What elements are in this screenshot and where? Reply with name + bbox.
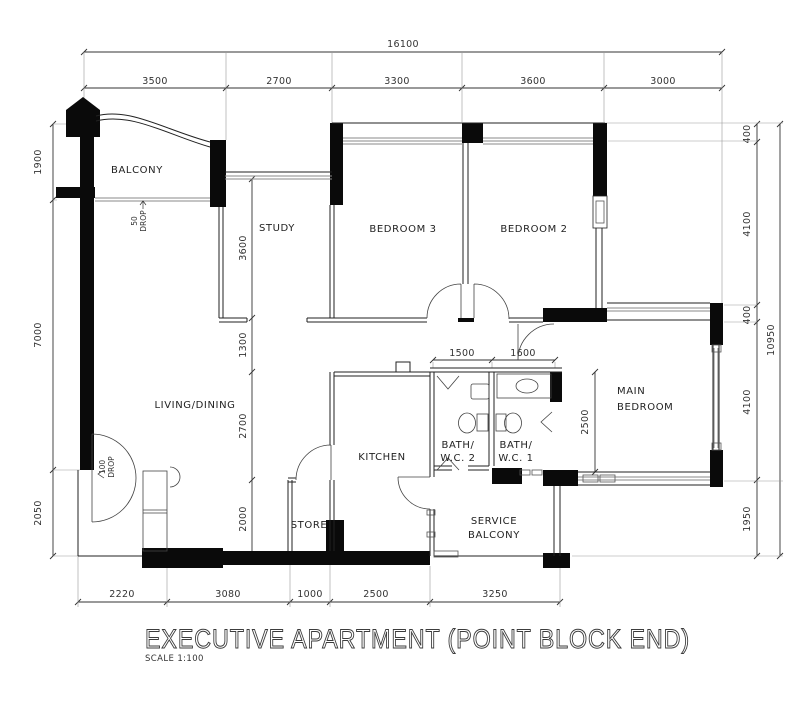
store-door-arc xyxy=(296,445,331,480)
room-label-study: STUDY xyxy=(259,223,295,234)
dim-bottom-3: 2500 xyxy=(363,589,388,600)
bath1-basin-icon xyxy=(516,379,538,393)
balcony-drop-word: DROP xyxy=(139,210,148,232)
entry-cabinet xyxy=(143,471,167,551)
bath2-folding-door xyxy=(437,376,459,389)
windows xyxy=(95,138,721,557)
wall-fin xyxy=(56,187,95,198)
bedroom2-door-arc xyxy=(474,284,509,319)
entry-cabinet-divider xyxy=(143,510,167,513)
dim-top-1: 2700 xyxy=(266,76,291,87)
dim-top-total: 16100 xyxy=(387,39,419,50)
bottom-wall-main xyxy=(223,551,430,565)
dim-bedroom-depth: 2500 xyxy=(580,409,591,434)
entrance-drop-value: 100 xyxy=(98,460,107,475)
bath-bottom-block xyxy=(492,468,522,484)
bath2-sink-icon xyxy=(471,384,489,399)
title-block: EXECUTIVE APARTMENT (POINT BLOCK END) SC… xyxy=(145,624,690,664)
room-label-main-line1: MAIN xyxy=(617,386,645,397)
bath1-right-wall-block xyxy=(550,372,562,402)
room-label-balcony: BALCONY xyxy=(111,165,163,176)
room-label-store: STORE xyxy=(291,520,328,531)
dim-bottom-4: 3250 xyxy=(482,589,507,600)
room-label-service-line1: SERVICE xyxy=(471,516,517,527)
annotations: 50 DROP 100 DROP xyxy=(98,201,148,478)
mainbedroom-topright-column xyxy=(710,303,723,345)
floor-plan-page: 16100 3500 2700 3300 3600 3000 1900 7000… xyxy=(0,0,800,707)
dim-left-1: 7000 xyxy=(33,322,44,347)
window-sill xyxy=(600,475,615,482)
bath1-toilet-icon xyxy=(505,413,522,433)
dim-bottom-0: 2220 xyxy=(109,589,134,600)
room-label-bedroom3: BEDROOM 3 xyxy=(369,224,436,235)
dim-interior-1: 1300 xyxy=(238,332,249,357)
dim-interior-3: 2000 xyxy=(238,506,249,531)
balcony-drop-arrow-icon xyxy=(140,201,146,209)
bath2-toilet-icon xyxy=(459,413,476,433)
dim-bottom-1: 3080 xyxy=(215,589,240,600)
room-label-bath1-line2: W.C. 1 xyxy=(498,453,533,464)
bedroom-door-jamb xyxy=(458,318,474,322)
room-label-bath1-line1: BATH/ xyxy=(500,440,533,451)
drawing-title: EXECUTIVE APARTMENT (POINT BLOCK END) xyxy=(145,624,690,654)
dim-right-3: 4100 xyxy=(742,389,753,414)
dim-interior-2: 2700 xyxy=(238,413,249,438)
servicebalcony-bottom-block xyxy=(543,553,570,568)
dim-interior-0: 3600 xyxy=(238,235,249,260)
dim-top-0: 3500 xyxy=(142,76,167,87)
dim-right-1: 4100 xyxy=(742,211,753,236)
dim-top-2: 3300 xyxy=(384,76,409,87)
room-label-service-line2: BALCONY xyxy=(468,530,520,541)
mainbedroom-bottomright-column xyxy=(710,450,723,487)
bath2-cistern xyxy=(477,414,488,431)
balcony-drop-value: 50 xyxy=(130,216,139,226)
bedroom3-bedroom2-column xyxy=(462,123,483,143)
drawing-scale: SCALE 1:100 xyxy=(145,654,204,664)
bedroom2-right-column xyxy=(593,123,607,196)
extension-lines xyxy=(53,52,783,607)
kitchen-service-door-arc xyxy=(398,477,430,509)
dim-right-0: 400 xyxy=(742,124,753,143)
room-label-kitchen: KITCHEN xyxy=(358,452,406,463)
dim-right-4: 1950 xyxy=(742,506,753,531)
dim-top-3: 3600 xyxy=(520,76,545,87)
bath1-vanity xyxy=(497,374,551,398)
study-bedroom3-column xyxy=(330,123,343,205)
floor-plan: 16100 3500 2700 3300 3600 3000 1900 7000… xyxy=(0,0,800,707)
dim-ticks xyxy=(50,49,783,605)
room-label-living-dining: LIVING/DINING xyxy=(154,400,235,411)
kitchen-duct xyxy=(396,362,410,372)
window-glazing xyxy=(95,138,718,480)
window-sill xyxy=(583,475,598,482)
entrance-drop-word: DROP xyxy=(107,456,116,478)
dim-left-0: 1900 xyxy=(33,149,44,174)
mainbedroom-topleft-wall xyxy=(543,308,607,322)
dim-right-total: 10950 xyxy=(766,324,777,356)
bedroom3-door-arc xyxy=(427,284,461,318)
dim-bath-1: 1600 xyxy=(510,348,535,359)
bath1-folding-door xyxy=(541,412,552,432)
room-label-bath2-line1: BATH/ xyxy=(442,440,475,451)
partition-walls xyxy=(78,114,719,556)
left-exterior-wall xyxy=(80,110,94,470)
dim-line-runs xyxy=(53,52,780,602)
room-label-bedroom2: BEDROOM 2 xyxy=(500,224,567,235)
dim-bath-0: 1500 xyxy=(449,348,474,359)
dim-right-2: 400 xyxy=(742,305,753,324)
dim-bottom-2: 1000 xyxy=(297,589,322,600)
mainbedroom-bottomleft-block xyxy=(543,470,578,486)
sliding-door-track xyxy=(532,470,542,475)
room-label-bath2-line2: W.C. 2 xyxy=(440,453,475,464)
entrance-small-arc xyxy=(170,467,180,487)
balcony-column xyxy=(210,140,226,207)
dim-top-4: 3000 xyxy=(650,76,675,87)
dimension-lines xyxy=(50,49,783,607)
room-label-main-line2: BEDROOM xyxy=(617,402,673,413)
dim-left-2: 2050 xyxy=(33,500,44,525)
